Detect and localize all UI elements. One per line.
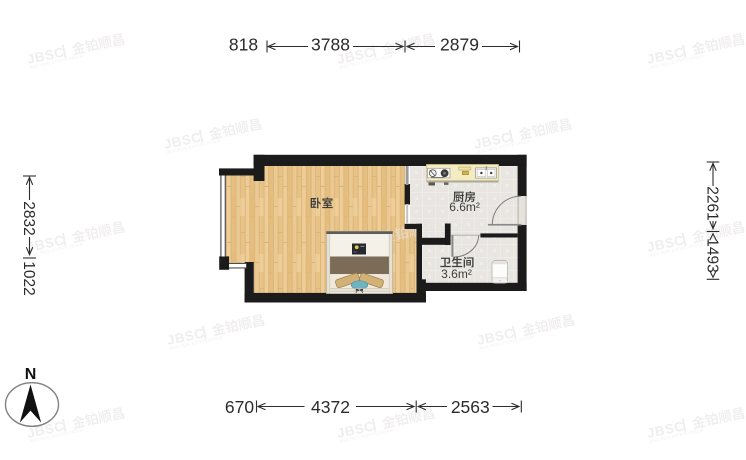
svg-text:670: 670 — [225, 397, 254, 417]
svg-text:2563: 2563 — [451, 397, 490, 417]
svg-text:3.6m²: 3.6m² — [441, 267, 472, 281]
svg-text:818: 818 — [229, 34, 258, 54]
svg-text:2832: 2832 — [20, 201, 37, 235]
svg-text:2879: 2879 — [440, 34, 479, 54]
svg-text:3788: 3788 — [311, 34, 350, 54]
svg-text:6.6m²: 6.6m² — [449, 200, 480, 214]
svg-text:1022: 1022 — [20, 261, 37, 295]
svg-text:4372: 4372 — [311, 397, 350, 417]
svg-text:2261: 2261 — [704, 186, 721, 220]
svg-text:1493: 1493 — [704, 238, 721, 272]
svg-text:N: N — [25, 366, 37, 383]
